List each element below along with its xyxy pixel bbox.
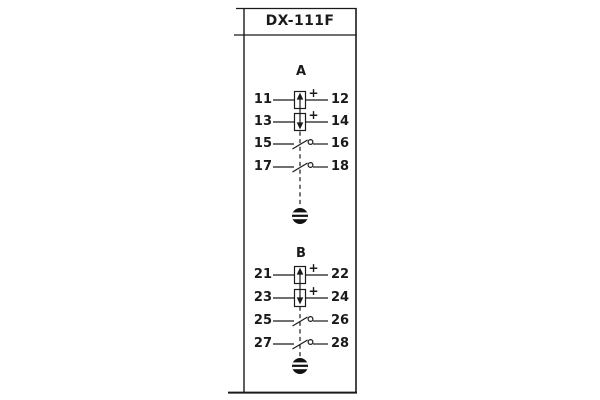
terminal-number: 24 (331, 290, 357, 306)
polarity-plus-sign: + (306, 262, 321, 275)
terminal-number: 14 (331, 114, 357, 130)
relay-model-label: DX-111F (244, 8, 356, 35)
group-b-symbols (273, 267, 328, 375)
relay-terminal-diagram: DX-111F A B 11 12 13 14 15 16 17 18 + + … (0, 0, 600, 400)
group-b-label: B (288, 246, 314, 262)
terminal-number: 13 (246, 114, 272, 130)
terminal-number: 21 (246, 267, 272, 283)
terminal-number: 18 (331, 159, 357, 175)
group-a-label: A (288, 64, 314, 80)
armature-arrow-icon (297, 268, 304, 305)
terminal-number: 22 (331, 267, 357, 283)
terminal-number: 23 (246, 290, 272, 306)
terminal-number: 27 (246, 336, 272, 352)
terminal-number: 25 (246, 313, 272, 329)
terminal-number: 11 (246, 92, 272, 108)
terminal-number: 28 (331, 336, 357, 352)
terminal-number: 17 (246, 159, 272, 175)
reset-button-icon (291, 358, 309, 374)
diagram-linework (0, 0, 600, 400)
terminal-number: 12 (331, 92, 357, 108)
polarity-plus-sign: + (306, 109, 321, 122)
polarity-plus-sign: + (306, 285, 321, 298)
reset-button-icon (291, 208, 309, 224)
polarity-plus-sign: + (306, 87, 321, 100)
terminal-number: 15 (246, 136, 272, 152)
terminal-number: 16 (331, 136, 357, 152)
terminal-number: 26 (331, 313, 357, 329)
armature-arrow-icon (297, 93, 304, 130)
